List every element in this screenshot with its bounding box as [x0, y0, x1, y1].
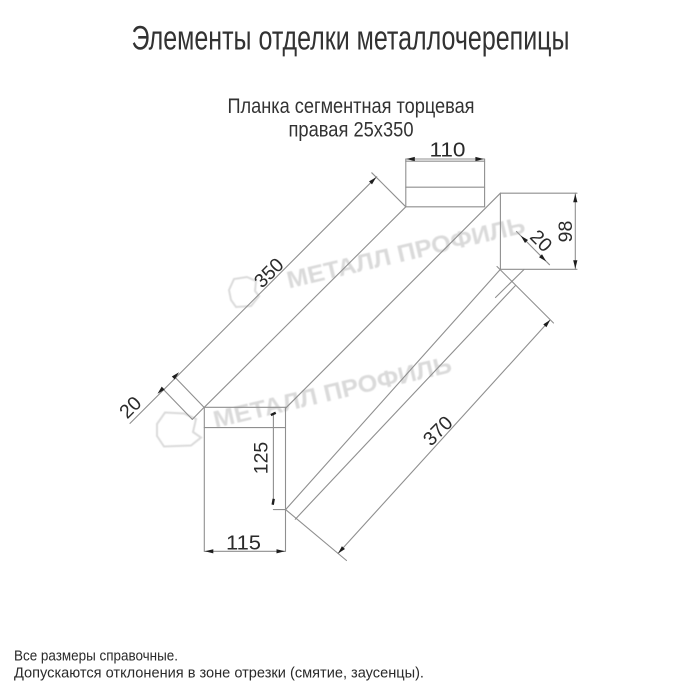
- svg-text:Планка сегментная торцевая: Планка сегментная торцевая: [228, 95, 475, 118]
- svg-text:правая 25х350: правая 25х350: [289, 119, 414, 142]
- svg-text:125: 125: [251, 442, 273, 475]
- svg-text:110: 110: [430, 140, 466, 162]
- svg-text:115: 115: [226, 533, 261, 555]
- svg-text:98: 98: [555, 221, 577, 243]
- svg-text:Допускаются отклонения в зоне: Допускаются отклонения в зоне отрезки (с…: [14, 665, 424, 682]
- svg-text:Элементы отделки металлочерепи: Элементы отделки металлочерепицы: [132, 20, 570, 58]
- svg-text:Все размеры справочные.: Все размеры справочные.: [14, 648, 178, 665]
